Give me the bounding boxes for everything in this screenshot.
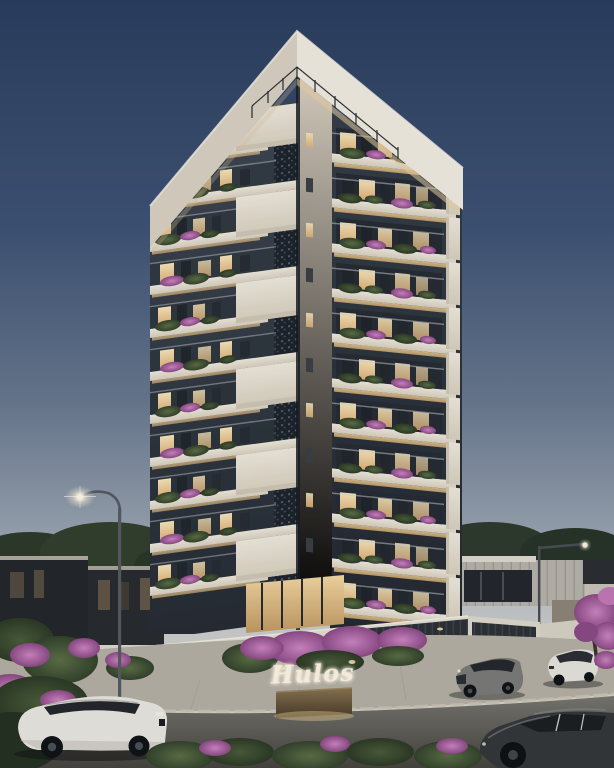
scene-architectural-render: Hulos <box>0 0 614 768</box>
vignette-overlay <box>0 0 614 768</box>
